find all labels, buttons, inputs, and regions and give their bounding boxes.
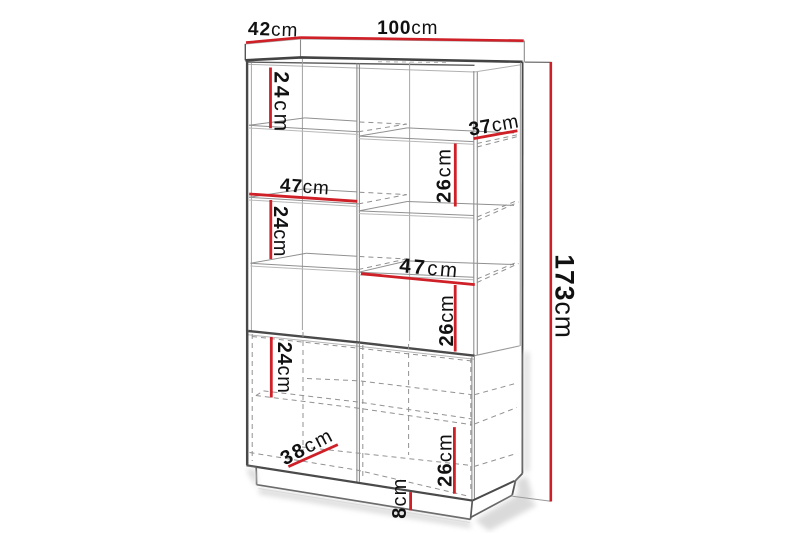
svg-text:47cm: 47cm bbox=[279, 175, 330, 199]
svg-text:173cm: 173cm bbox=[549, 254, 579, 339]
svg-text:24cm: 24cm bbox=[269, 206, 291, 257]
svg-text:42cm: 42cm bbox=[248, 19, 299, 42]
svg-text:26cm: 26cm bbox=[436, 295, 458, 347]
svg-text:8cm: 8cm bbox=[389, 478, 411, 519]
svg-text:26cm: 26cm bbox=[433, 147, 455, 203]
svg-text:26cm: 26cm bbox=[435, 433, 457, 487]
svg-text:24cm: 24cm bbox=[269, 71, 292, 134]
svg-text:24cm: 24cm bbox=[273, 342, 295, 394]
svg-text:100cm: 100cm bbox=[377, 18, 438, 39]
